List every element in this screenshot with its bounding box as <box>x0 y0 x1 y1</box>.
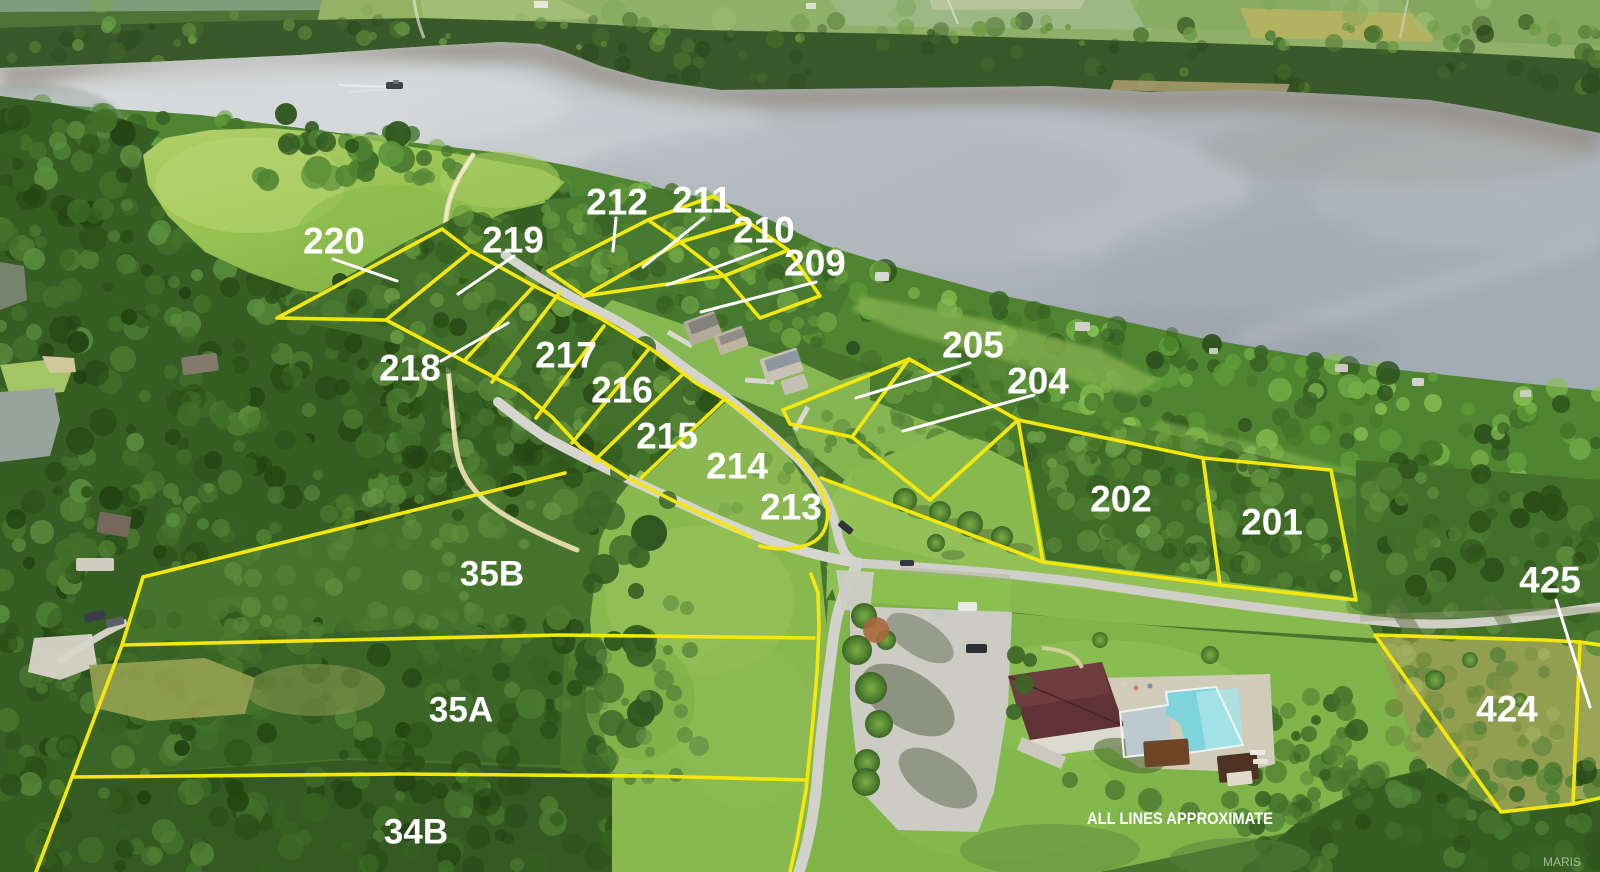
svg-text:ALL LINES APPROXIMATE: ALL LINES APPROXIMATE <box>1087 809 1273 828</box>
svg-text:204: 204 <box>1007 361 1069 402</box>
svg-text:213: 213 <box>760 487 822 528</box>
svg-text:220: 220 <box>303 221 365 262</box>
svg-text:425: 425 <box>1519 560 1581 601</box>
svg-text:202: 202 <box>1090 479 1152 520</box>
svg-text:217: 217 <box>535 335 597 376</box>
svg-text:34B: 34B <box>384 813 448 852</box>
svg-text:35A: 35A <box>429 691 493 730</box>
svg-text:212: 212 <box>586 182 648 223</box>
svg-text:205: 205 <box>942 325 1004 366</box>
svg-text:214: 214 <box>706 446 768 487</box>
svg-text:209: 209 <box>784 243 846 284</box>
svg-text:201: 201 <box>1241 502 1303 543</box>
svg-text:218: 218 <box>379 348 441 389</box>
svg-text:35B: 35B <box>460 555 524 594</box>
svg-text:MARIS: MARIS <box>1543 855 1581 869</box>
svg-text:215: 215 <box>636 416 698 457</box>
svg-text:219: 219 <box>482 220 544 261</box>
svg-text:211: 211 <box>672 180 732 221</box>
svg-text:216: 216 <box>591 370 653 411</box>
svg-text:424: 424 <box>1476 689 1538 730</box>
